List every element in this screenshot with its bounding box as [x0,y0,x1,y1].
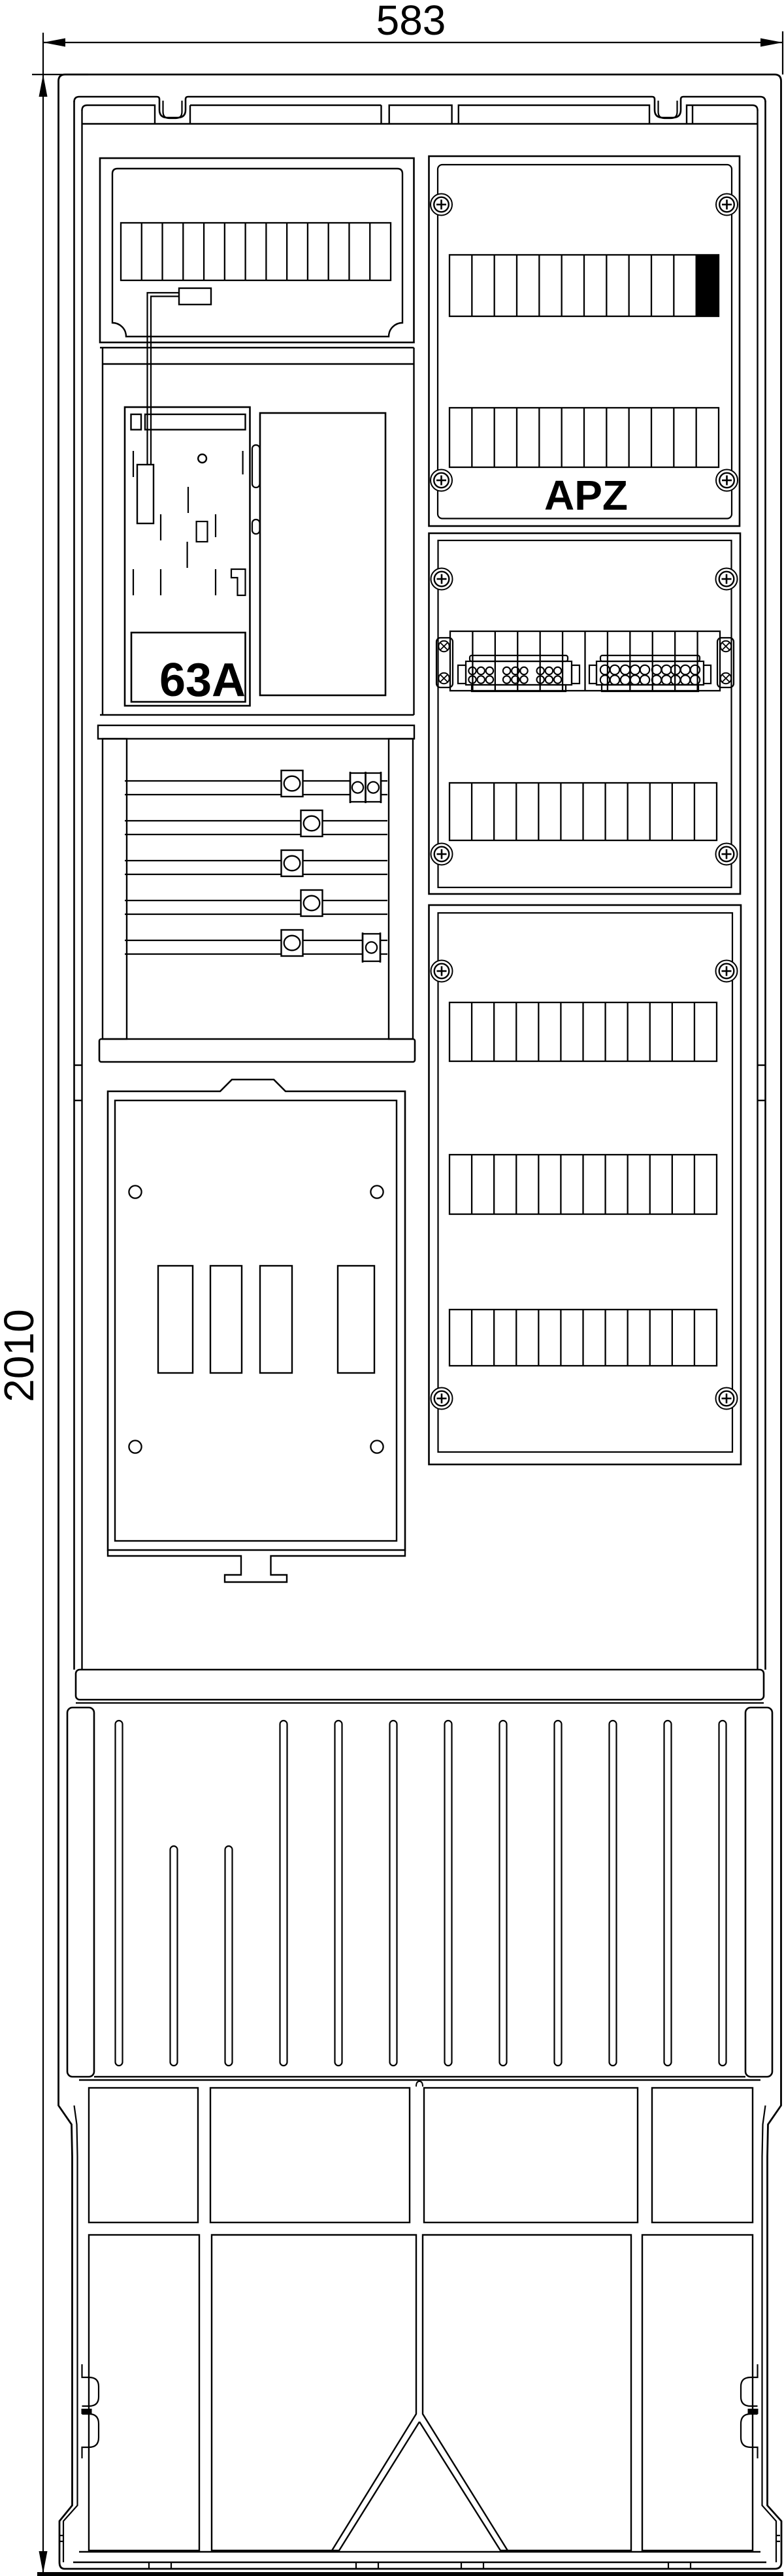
svg-text:2010: 2010 [0,1309,42,1402]
svg-text:583: 583 [376,0,446,44]
svg-text:63A: 63A [159,654,246,706]
svg-text:APZ: APZ [544,472,628,519]
